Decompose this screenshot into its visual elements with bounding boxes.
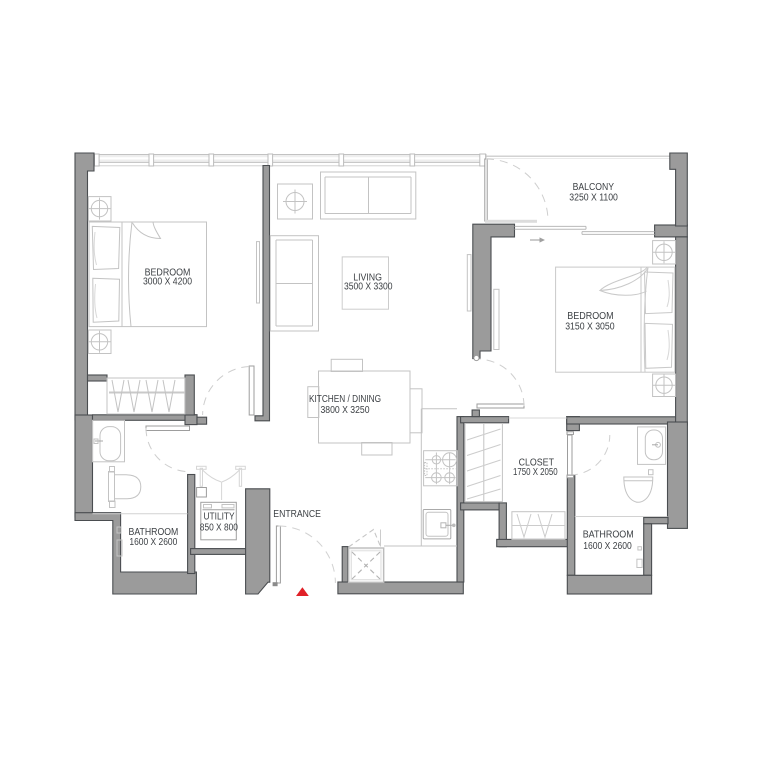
svg-text:3800 X 3250: 3800 X 3250 [321,405,371,416]
svg-text:BATHROOM: BATHROOM [583,529,634,540]
svg-text:850 X 800: 850 X 800 [200,522,239,533]
svg-text:3000 X 4200: 3000 X 4200 [143,277,193,288]
svg-text:3250 X 1100: 3250 X 1100 [569,193,618,204]
svg-text:1600 X 2600: 1600 X 2600 [583,541,632,552]
svg-text:1750 X 2050: 1750 X 2050 [513,467,558,478]
svg-text:KITCHEN / DINING: KITCHEN / DINING [309,394,381,405]
svg-text:BEDROOM: BEDROOM [567,311,613,322]
svg-text:UTILITY: UTILITY [204,512,235,523]
svg-text:ENTRANCE: ENTRANCE [273,509,321,520]
svg-text:BALCONY: BALCONY [573,182,615,193]
svg-text:1600 X 2600: 1600 X 2600 [129,537,177,548]
svg-text:3150 X 3050: 3150 X 3050 [565,322,615,333]
svg-text:3500 X 3300: 3500 X 3300 [344,282,393,293]
